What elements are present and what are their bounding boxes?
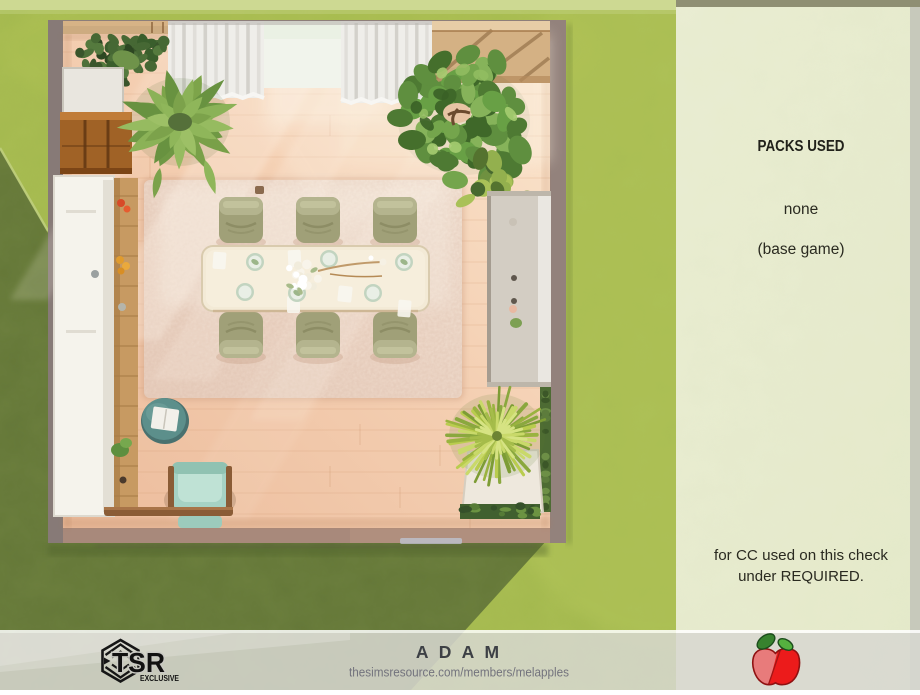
svg-text:under REQUIRED.: under REQUIRED. <box>738 568 864 585</box>
svg-text:(base game): (base game) <box>757 241 844 258</box>
svg-text:EXCLUSIVE: EXCLUSIVE <box>140 673 179 683</box>
svg-text:thesimsresource.com/members/me: thesimsresource.com/members/melapples <box>349 665 569 680</box>
svg-text:none: none <box>784 201 818 218</box>
svg-text:A D A M: A D A M <box>416 642 502 662</box>
svg-text:for CC used on this check: for CC used on this check <box>714 547 889 564</box>
svg-text:PACKS USED: PACKS USED <box>758 138 845 155</box>
